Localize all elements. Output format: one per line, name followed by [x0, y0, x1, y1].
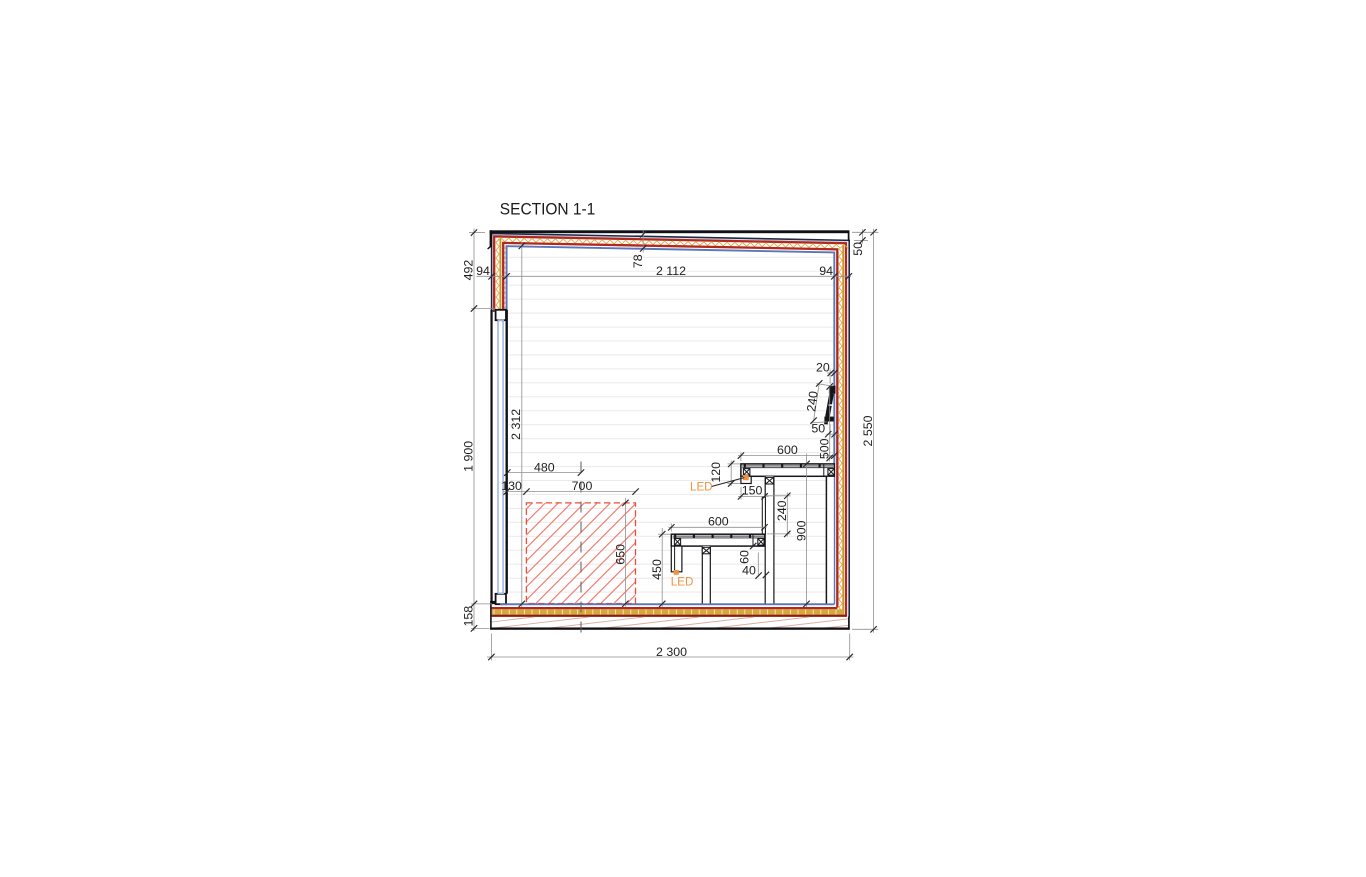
svg-text:50: 50	[811, 421, 825, 435]
svg-text:700: 700	[572, 479, 593, 493]
svg-text:492: 492	[461, 260, 475, 281]
svg-text:600: 600	[777, 443, 798, 457]
svg-text:20: 20	[816, 361, 830, 375]
svg-text:94: 94	[476, 264, 490, 278]
svg-text:240: 240	[804, 390, 821, 412]
svg-text:450: 450	[650, 559, 664, 580]
svg-text:78: 78	[631, 254, 645, 268]
svg-text:2 300: 2 300	[656, 645, 687, 659]
svg-text:SECTION 1-1: SECTION 1-1	[500, 199, 596, 218]
svg-text:480: 480	[534, 461, 555, 475]
svg-text:240: 240	[775, 500, 789, 521]
svg-text:500: 500	[818, 438, 832, 459]
svg-text:94: 94	[819, 264, 833, 278]
svg-text:150: 150	[742, 483, 763, 497]
svg-text:120: 120	[709, 462, 723, 483]
svg-text:600: 600	[708, 515, 729, 529]
svg-text:158: 158	[461, 606, 475, 627]
svg-text:2 112: 2 112	[656, 264, 686, 278]
svg-text:40: 40	[742, 563, 756, 577]
svg-text:2 312: 2 312	[509, 409, 523, 440]
svg-text:2 550: 2 550	[861, 415, 875, 446]
svg-text:LED: LED	[671, 575, 694, 588]
svg-text:650: 650	[613, 544, 627, 565]
svg-text:1 900: 1 900	[461, 441, 475, 472]
svg-text:50: 50	[851, 242, 865, 256]
svg-text:LED: LED	[690, 481, 713, 494]
svg-text:900: 900	[795, 520, 809, 541]
svg-text:60: 60	[737, 550, 751, 564]
svg-text:130: 130	[501, 479, 522, 493]
